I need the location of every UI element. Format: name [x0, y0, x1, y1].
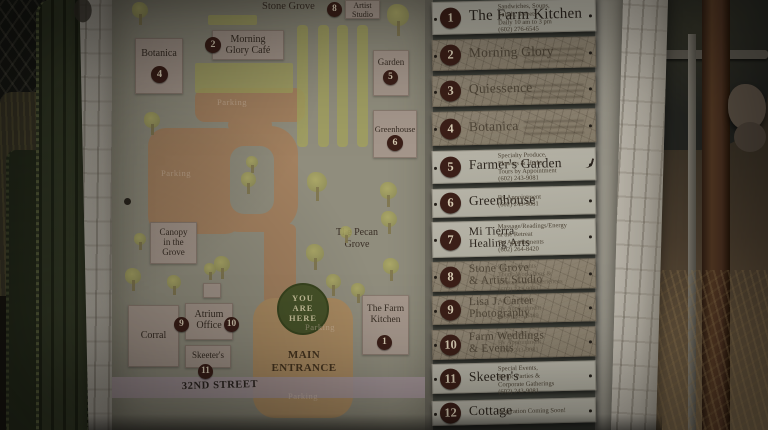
tree-trunk — [132, 280, 135, 291]
background-left — [0, 0, 92, 430]
tree-canopy — [214, 256, 230, 272]
map-label-small-structure — [203, 283, 221, 298]
tree-trunk — [139, 14, 142, 25]
directory-item-10: 10Farm Weddings& EventsAtrium OfficeBy A… — [432, 326, 597, 360]
tree-icon — [387, 4, 409, 37]
sign-shadow — [88, 414, 662, 430]
directory-item-9: 9Lisa J. CarterPhotographyAtrium OfficeB… — [432, 292, 597, 325]
directory-badge-7: 7 — [440, 229, 461, 250]
screw-icon — [434, 276, 437, 279]
tree-trunk — [314, 258, 317, 271]
screw-icon — [589, 51, 592, 54]
map-badge-10: 10 — [224, 317, 239, 332]
tree-icon — [214, 256, 230, 280]
tree-canopy — [380, 182, 397, 199]
directory-panel: 1The Farm KitchenSandwiches, Soups,Salad… — [425, 0, 625, 430]
directory-item-5: 5Farmer's GardenSpecialty Produce,Flower… — [432, 147, 597, 184]
directory-details-7: Massage/Readings/Energyat the RetreatBy … — [498, 222, 587, 255]
tree-icon — [383, 258, 399, 282]
screw-icon — [434, 309, 437, 312]
directory-badge-2: 2 — [440, 44, 461, 65]
directory-badge-6: 6 — [440, 192, 461, 213]
map-label-canopy-in-the-grove: Canopyin theGrove — [150, 222, 197, 264]
tree-trunk — [209, 272, 212, 280]
directory-badge-1: 1 — [440, 7, 461, 28]
illegible-text — [524, 81, 584, 99]
directory-item-8: 8Stone Grove& Artist StudioSpecial Event… — [432, 258, 597, 292]
tree-canopy — [144, 112, 160, 128]
tree-canopy — [326, 274, 341, 289]
directory-item-6: 6GreenhouseBy Appointment(602) 243-9081 — [432, 185, 597, 218]
farm-map-sign-photo: 32ND STREET Stone Grove The Pecan Grove … — [0, 0, 768, 430]
tree-trunk — [357, 294, 360, 304]
road-loop-island — [230, 146, 274, 214]
tree-trunk — [387, 195, 390, 207]
tree-trunk — [221, 268, 224, 279]
directory-item-2: 2Morning Glory — [432, 36, 597, 71]
screw-icon — [434, 239, 437, 242]
screw-icon — [589, 14, 592, 17]
tree-canopy — [167, 275, 181, 289]
directory-item-1: 1The Farm KitchenSandwiches, Soups,Salad… — [432, 0, 597, 35]
screw-icon — [589, 340, 592, 343]
directory-name-4: Botanica — [469, 119, 519, 134]
screw-icon — [589, 409, 592, 412]
map-label-pecan-grove: The Pecan Grove — [324, 227, 390, 250]
directory-badge-11: 11 — [440, 368, 461, 389]
tree-trunk — [332, 285, 335, 296]
screw-icon — [434, 90, 437, 93]
tree-trunk — [139, 242, 142, 250]
tree-icon — [132, 2, 148, 26]
tree-icon — [326, 274, 341, 297]
directory-badge-4: 4 — [440, 118, 461, 139]
screw-icon — [434, 202, 437, 205]
garden-row — [357, 25, 368, 147]
map-label-stone-grove: Stone Grove — [262, 1, 332, 12]
tree-trunk — [173, 286, 176, 296]
directory-details-9: Atrium OfficeBy Appointment(480) 286-044… — [498, 296, 587, 321]
tree-icon — [125, 268, 141, 292]
garden-row — [337, 25, 348, 147]
tree-canopy — [125, 268, 141, 284]
tree-trunk — [397, 21, 400, 36]
field-patch — [208, 15, 257, 25]
screw-icon — [589, 235, 592, 238]
you-are-here-label: YOU ARE HERE — [285, 294, 321, 323]
screw-icon — [589, 272, 592, 275]
garden-row — [318, 25, 329, 147]
directory-details-6: By Appointment(602) 243-9081 — [498, 192, 586, 210]
tree-canopy — [307, 172, 327, 192]
directory-item-4: 4Botanica — [432, 108, 597, 146]
illegible-text — [524, 117, 584, 135]
tree-icon — [204, 263, 216, 281]
rock — [734, 122, 766, 152]
tree-canopy — [204, 263, 216, 275]
bolt-icon — [124, 198, 131, 205]
screw-icon — [434, 17, 437, 20]
tree-canopy — [132, 2, 148, 18]
tree-trunk — [316, 187, 319, 201]
map-label-corral: Corral — [128, 305, 179, 367]
tree-canopy — [306, 244, 324, 262]
wood-knot — [73, 0, 91, 23]
tree-canopy — [387, 4, 409, 26]
tree-trunk — [390, 270, 393, 281]
directory-item-11: 11Skeeter'sSpecial Events,Picnic Parties… — [432, 360, 597, 394]
directory-details-10: Atrium OfficeBy Appointment(602) 243-908… — [498, 330, 587, 355]
directory-details-11: Special Events,Picnic Parties &Corporate… — [498, 364, 587, 397]
directory-badge-8: 8 — [440, 266, 461, 287]
map-badge-1: 1 — [377, 335, 392, 350]
main-entrance-label: MAIN ENTRANCE — [266, 349, 342, 374]
directory-item-3: 3Quiessence — [432, 72, 597, 107]
illegible-text — [524, 45, 584, 63]
street-band — [112, 377, 432, 398]
parking-label: Parking — [298, 322, 342, 332]
map-badge-8: 8 — [327, 2, 342, 17]
garden-row — [297, 25, 308, 147]
directory-details-5: Specialty Produce,Flowers & HerbsTours b… — [498, 151, 587, 184]
directory-details-1: Sandwiches, Soups,Salads, SweetsDaily 10… — [498, 2, 587, 35]
parking-label: Parking — [212, 97, 252, 107]
directory-details-8: Special EventsTours, Workshops &Educatio… — [498, 262, 587, 295]
directory-badge-9: 9 — [440, 299, 461, 320]
screw-icon — [434, 166, 437, 169]
directory-badge-5: 5 — [440, 156, 461, 177]
tree-icon — [306, 244, 324, 271]
map-panel: 32ND STREET Stone Grove The Pecan Grove … — [112, 0, 432, 430]
screw-icon — [589, 87, 592, 90]
screw-icon — [589, 163, 592, 166]
screw-icon — [589, 306, 592, 309]
directory-badge-10: 10 — [440, 334, 461, 355]
screw-icon — [434, 54, 437, 57]
field-patch — [195, 63, 293, 93]
tree-canopy — [383, 258, 399, 274]
screw-icon — [589, 199, 592, 202]
tree-icon — [307, 172, 327, 202]
screw-icon — [589, 124, 592, 127]
tree-icon — [134, 233, 146, 251]
map-badge-6: 6 — [387, 135, 403, 151]
parking-label: Parking — [156, 168, 196, 178]
screw-icon — [434, 378, 437, 381]
map-label-morning-glory-cafe: MorningGlory Café — [212, 30, 284, 60]
directory-badge-3: 3 — [440, 80, 461, 101]
map-badge-5: 5 — [383, 70, 398, 85]
tree-canopy — [381, 211, 397, 227]
tree-icon — [380, 182, 397, 208]
map-badge-2: 2 — [205, 37, 221, 53]
screw-icon — [434, 128, 437, 131]
tree-icon — [167, 275, 181, 296]
screw-icon — [434, 344, 437, 347]
map-badge-11: 11 — [198, 364, 213, 379]
map-label-artist-studio: ArtistStudio — [345, 0, 380, 19]
parking-label: Parking — [280, 391, 326, 401]
map-badge-4: 4 — [151, 66, 168, 83]
directory-item-7: 7Mi TierraHealing ArtsMassage/Readings/E… — [432, 218, 597, 258]
tree-canopy — [134, 233, 146, 245]
screw-icon — [589, 374, 592, 377]
map-badge-9: 9 — [174, 317, 189, 332]
